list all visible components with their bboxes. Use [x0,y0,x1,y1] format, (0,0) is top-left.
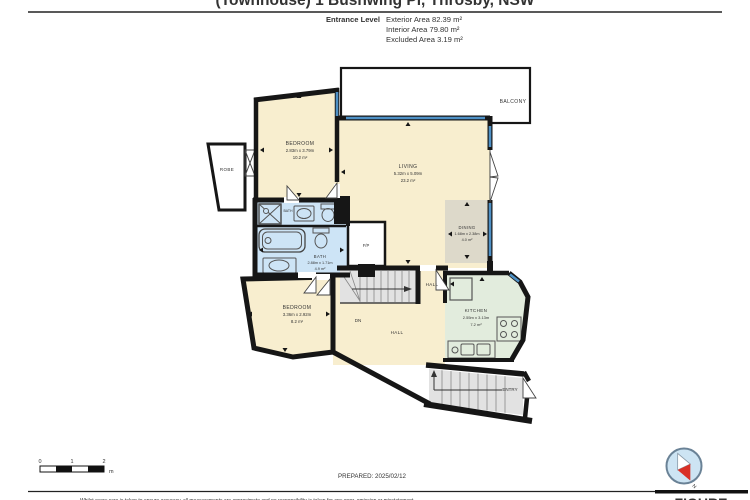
room-robe [208,144,245,210]
scale-bar: 0 1 2 m [38,459,114,475]
label-dining-dims: 1.68m x 2.38m [454,232,479,236]
scale-tick-1: 1 [70,459,73,465]
area-line-exterior: Exterior Area 82.39 m² [386,15,462,24]
label-hall-upper: HALL [426,282,439,287]
compass-n-label: N [690,483,697,490]
page-title: (Townhouse) 1 Bushwing Pl, Throsby, NSW [216,0,535,9]
logo-bar [655,490,748,494]
logo-text: FIGURE [675,495,728,500]
label-bedroom1-name: BEDROOM [286,141,315,147]
label-bedroom1-area: 10.2 m² [293,155,308,160]
label-stairs-dn: DN [355,318,362,323]
level-label: Entrance Level [326,15,380,24]
room-balcony [341,68,530,123]
label-fireplace: F/P [363,243,370,248]
label-balcony: BALCONY [500,99,527,105]
scale-tick-0: 0 [38,459,41,465]
label-hall-lower: HALL [391,330,404,335]
label-dining-area: 4.0 m² [462,238,473,242]
label-bath-small: BATH [283,209,293,213]
label-living-name: LIVING [399,164,418,170]
label-bath-main-area: 4.9 m² [315,267,326,271]
label-bedroom2-name: BEDROOM [283,305,312,311]
room-bedroom2 [243,277,333,357]
logo: N FIGURE [655,449,748,500]
prepared-date: PREPARED: 2025/02/12 [338,473,407,480]
label-bedroom1-dims: 2.83m x 3.79m [286,148,315,153]
header: (Townhouse) 1 Bushwing Pl, Throsby, NSW … [28,0,722,44]
label-robe: ROBE [220,167,234,172]
label-bath-main-dims: 2.88m x 1.71m [307,261,332,265]
label-bedroom2-area: 8.2 m² [291,319,304,324]
scale-tick-2: 2 [102,459,105,465]
area-line-excluded: Excluded Area 3.19 m² [386,35,463,44]
label-kitchen-name: KITCHEN [465,308,488,313]
label-dining-name: DINING [458,225,475,230]
label-kitchen-dims: 2.55m x 3.13m [463,315,490,320]
area-line-interior: Interior Area 79.80 m² [386,25,460,34]
label-bedroom2-dims: 3.36m x 2.92m [283,312,312,317]
floor-plan-canvas: (Townhouse) 1 Bushwing Pl, Throsby, NSW … [0,0,750,500]
label-living-dims: 5.32m x 5.09m [394,171,423,176]
label-bath-main-name: BATH [314,254,326,259]
floor-plan-page: (Townhouse) 1 Bushwing Pl, Throsby, NSW … [0,0,750,500]
scale-unit: m [109,469,114,475]
label-entry: ENTRY [502,387,517,392]
label-living-area: 23.2 m² [401,178,416,183]
label-kitchen-area: 7.2 m² [470,322,482,327]
